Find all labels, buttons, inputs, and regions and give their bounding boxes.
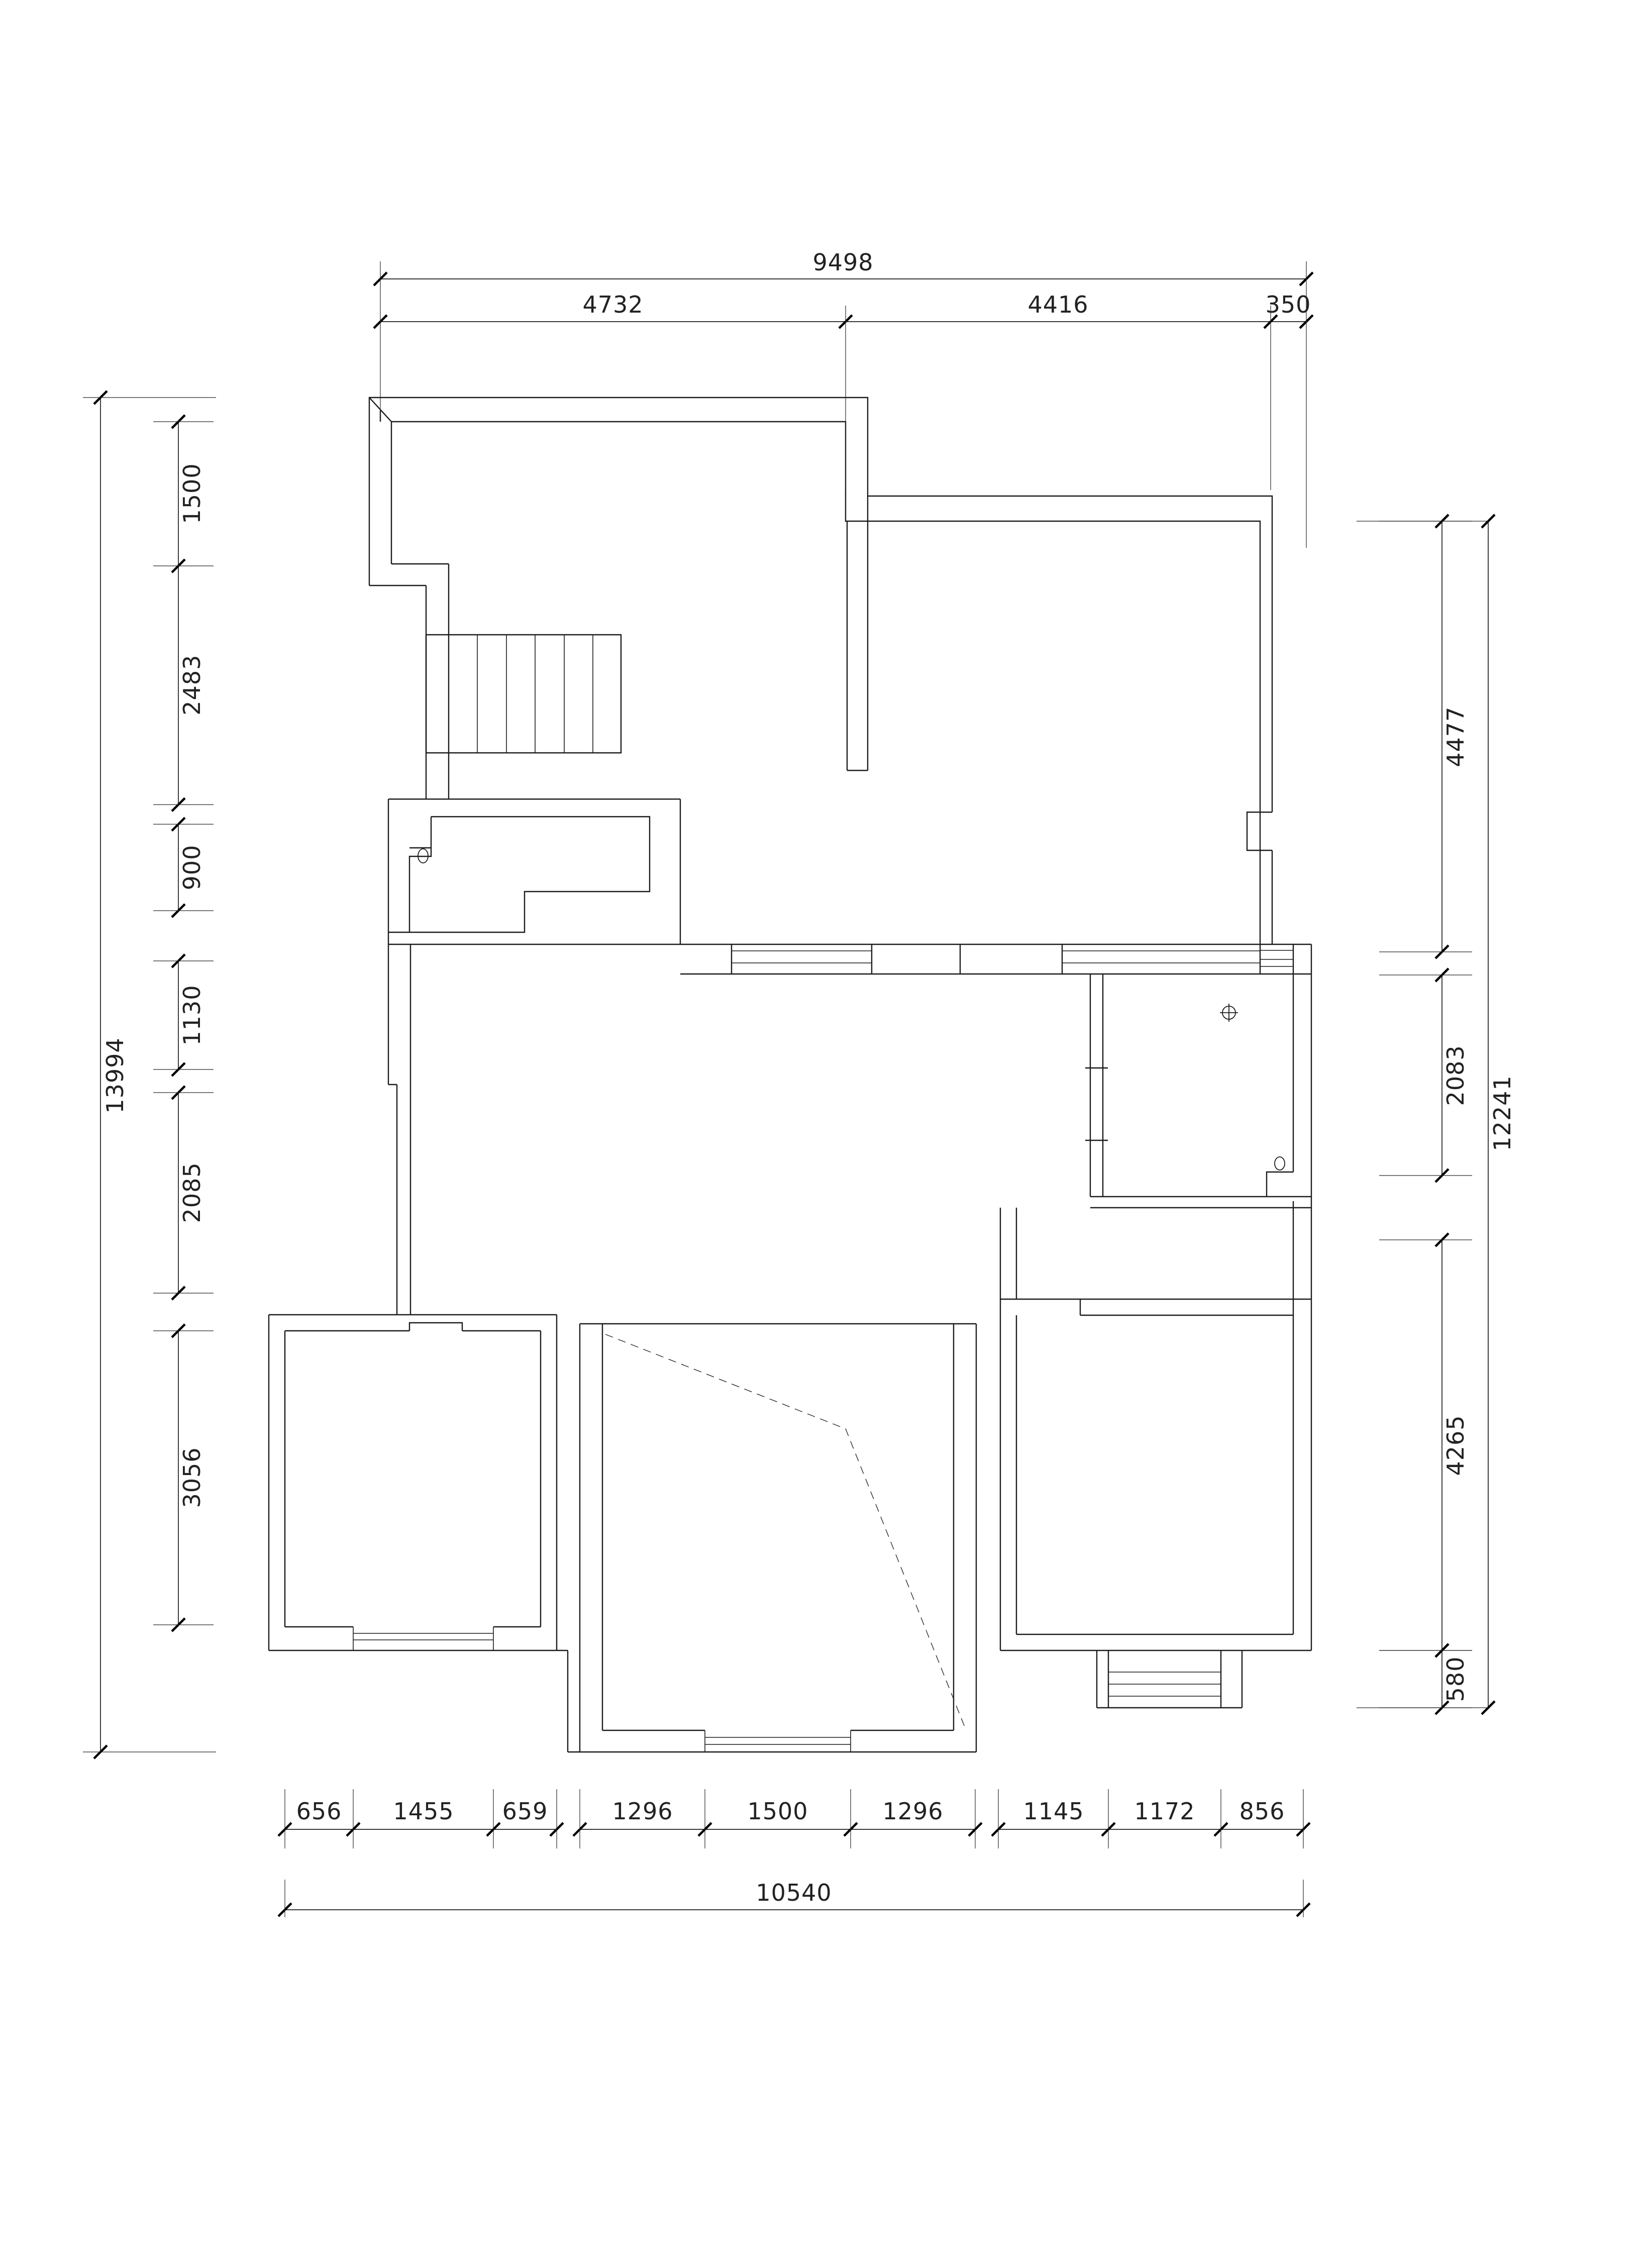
ceiling-slope-line bbox=[605, 1334, 965, 1727]
bottom-middle-room-walls bbox=[557, 1324, 976, 1752]
dim-bottom-seg-0: 656 bbox=[296, 1798, 342, 1825]
hall-partition-wall bbox=[847, 496, 868, 770]
left-wall-step bbox=[369, 564, 449, 799]
staircase bbox=[426, 635, 621, 753]
right-outer-wall bbox=[1293, 944, 1311, 1650]
dim-bottom-seg-8: 856 bbox=[1240, 1798, 1285, 1825]
door-knob-icon bbox=[1275, 1157, 1285, 1170]
dim-left-seg-2: 900 bbox=[178, 845, 205, 891]
dim-left-overall: 13994 bbox=[101, 1037, 129, 1113]
dim-right-seg-2: 4265 bbox=[1442, 1415, 1469, 1476]
dim-left-seg-5: 3056 bbox=[178, 1447, 205, 1508]
floor-drain-icon bbox=[1220, 1004, 1238, 1022]
band-window-glazing bbox=[732, 950, 1293, 966]
dim-bottom-overall: 10540 bbox=[756, 1879, 832, 1906]
bottom-left-room-walls bbox=[269, 1315, 557, 1650]
dim-top-seg-0: 4732 bbox=[582, 291, 643, 318]
window-band bbox=[680, 944, 1311, 974]
dim-right-overall: 12241 bbox=[1489, 1075, 1516, 1151]
walls-layer bbox=[269, 398, 1311, 1752]
bottom-middle-window bbox=[705, 1730, 851, 1752]
dim-bottom-seg-4: 1500 bbox=[747, 1798, 808, 1825]
bottom-right-room-walls bbox=[1000, 1299, 1311, 1708]
dim-bottom-seg-3: 1296 bbox=[612, 1798, 673, 1825]
floor-plan-canvas: 9498473244163501399415002483900113020853… bbox=[0, 0, 1652, 2248]
dimension-layer: 9498473244163501399415002483900113020853… bbox=[83, 249, 1516, 1917]
dim-left-seg-3: 1130 bbox=[178, 985, 205, 1045]
bathroom-corner-fixture bbox=[1267, 1172, 1293, 1197]
bathroom-walls bbox=[1085, 974, 1311, 1208]
dim-left-seg-1: 2483 bbox=[178, 654, 205, 715]
dim-top-seg-1: 4416 bbox=[1027, 291, 1088, 318]
dim-right-seg-1: 2083 bbox=[1442, 1045, 1469, 1106]
bottom-left-window bbox=[353, 1627, 493, 1650]
dim-left-seg-4: 2085 bbox=[178, 1162, 205, 1223]
dim-bottom-seg-6: 1145 bbox=[1023, 1798, 1084, 1825]
entry-steps bbox=[1097, 1650, 1242, 1708]
upper-block-outer-wall bbox=[369, 398, 1272, 944]
dim-bottom-seg-5: 1296 bbox=[882, 1798, 943, 1825]
dim-bottom-seg-1: 1455 bbox=[393, 1798, 454, 1825]
dim-bottom-seg-2: 659 bbox=[502, 1798, 548, 1825]
dim-right-seg-3: 580 bbox=[1442, 1656, 1469, 1702]
dim-top-overall: 9498 bbox=[812, 249, 873, 276]
dim-top-seg-2: 350 bbox=[1266, 291, 1311, 318]
corridor-wall bbox=[1000, 1208, 1016, 1299]
kitchen-walls bbox=[388, 799, 680, 1315]
dim-bottom-seg-7: 1172 bbox=[1134, 1798, 1195, 1825]
dim-left-seg-0: 1500 bbox=[178, 463, 205, 524]
upper-block-inner-wall bbox=[369, 398, 1260, 944]
dim-right-seg-0: 4477 bbox=[1442, 706, 1469, 767]
cad-floor-plan-page: { "drawing": { "type": "architectural fl… bbox=[0, 0, 1652, 2248]
